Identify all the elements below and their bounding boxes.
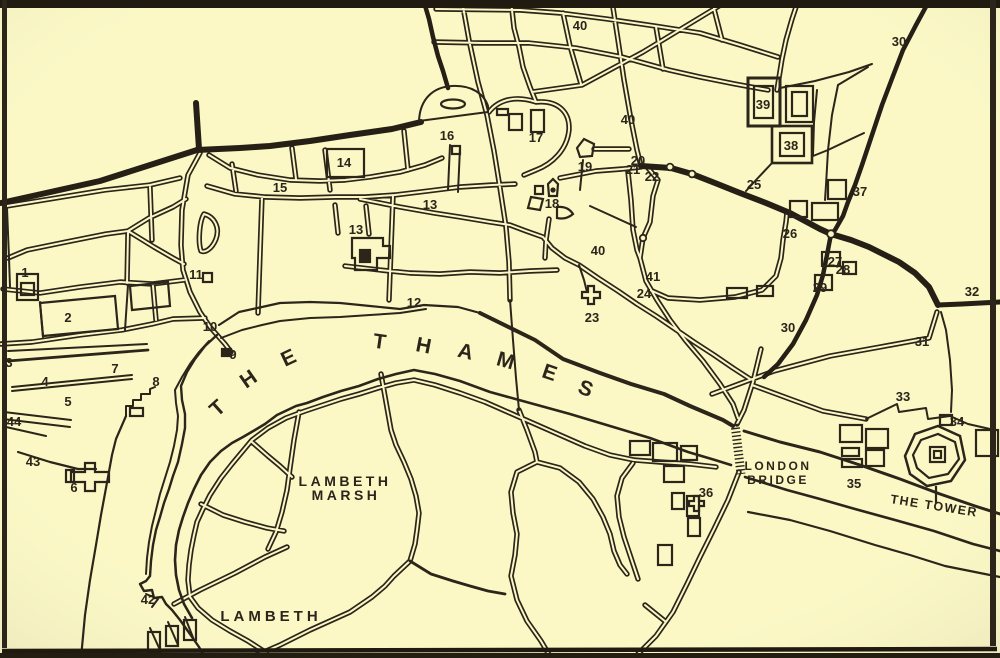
svg-text:40: 40 (621, 112, 635, 127)
svg-text:3: 3 (5, 355, 12, 370)
svg-text:12: 12 (407, 295, 421, 310)
svg-text:21: 21 (626, 162, 640, 177)
svg-text:42: 42 (141, 592, 155, 607)
svg-text:5: 5 (64, 394, 71, 409)
svg-text:30: 30 (892, 34, 906, 49)
svg-text:2: 2 (64, 310, 71, 325)
svg-text:6: 6 (70, 480, 77, 495)
svg-text:40: 40 (591, 243, 605, 258)
svg-text:37: 37 (853, 184, 867, 199)
svg-text:40: 40 (573, 18, 587, 33)
svg-text:28: 28 (836, 262, 850, 277)
svg-text:24: 24 (637, 286, 652, 301)
svg-text:43: 43 (26, 454, 40, 469)
svg-text:38: 38 (784, 138, 798, 153)
svg-text:13: 13 (423, 197, 437, 212)
svg-text:15: 15 (273, 180, 287, 195)
svg-text:44: 44 (7, 414, 22, 429)
svg-text:9: 9 (229, 347, 236, 362)
svg-text:LAMBETH: LAMBETH (220, 608, 321, 625)
svg-text:14: 14 (337, 155, 352, 170)
svg-text:32: 32 (965, 284, 979, 299)
svg-text:8: 8 (152, 374, 159, 389)
svg-text:29: 29 (813, 280, 827, 295)
svg-text:MARSH: MARSH (312, 487, 381, 503)
svg-text:7: 7 (111, 361, 118, 376)
svg-text:4: 4 (41, 374, 49, 389)
svg-text:26: 26 (783, 226, 797, 241)
svg-text:22: 22 (645, 169, 659, 184)
svg-text:36: 36 (699, 485, 713, 500)
svg-text:18: 18 (545, 196, 559, 211)
svg-text:23: 23 (585, 310, 599, 325)
svg-text:17: 17 (529, 130, 543, 145)
svg-text:39: 39 (756, 97, 770, 112)
svg-text:10: 10 (203, 319, 217, 334)
svg-text:16: 16 (440, 128, 454, 143)
svg-text:BRIDGE: BRIDGE (747, 473, 809, 487)
svg-text:25: 25 (747, 177, 761, 192)
svg-text:34: 34 (950, 414, 965, 429)
svg-text:30: 30 (781, 320, 795, 335)
svg-text:13: 13 (349, 222, 363, 237)
svg-text:LONDON: LONDON (745, 459, 812, 473)
svg-text:35: 35 (847, 476, 861, 491)
svg-text:33: 33 (896, 389, 910, 404)
svg-text:41: 41 (646, 269, 660, 284)
svg-text:31: 31 (915, 334, 929, 349)
svg-text:11: 11 (189, 267, 203, 282)
svg-text:1: 1 (21, 265, 28, 280)
svg-text:19: 19 (578, 159, 592, 174)
